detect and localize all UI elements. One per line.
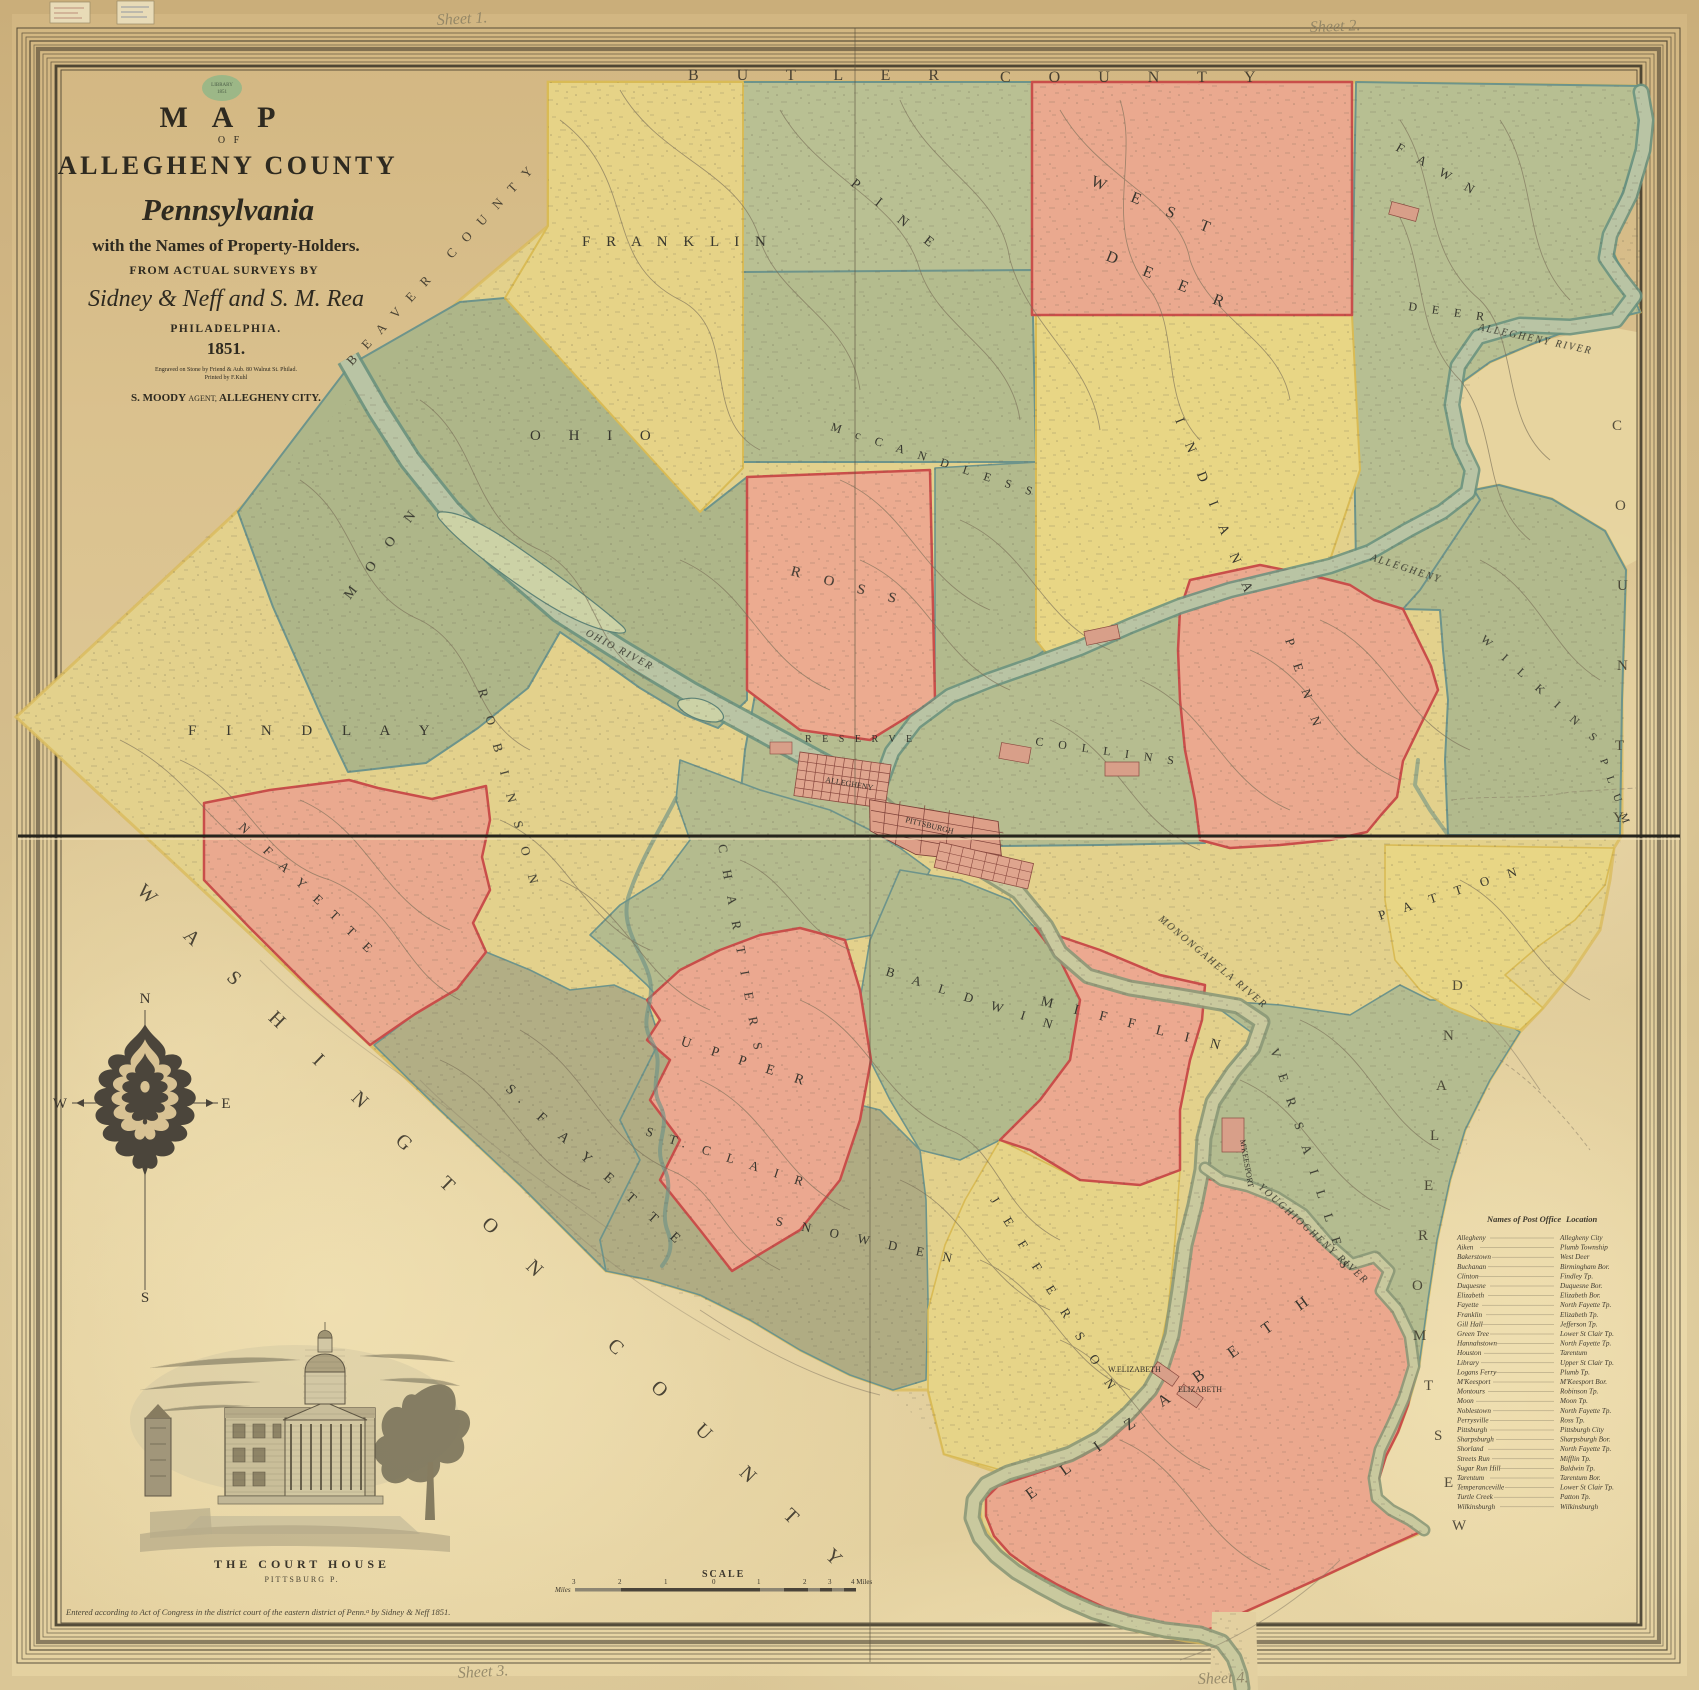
- svg-text:Noblestown: Noblestown: [1456, 1407, 1491, 1415]
- svg-text:Birmingham Bor.: Birmingham Bor.: [1560, 1263, 1610, 1271]
- svg-text:PHILADELPHIA.: PHILADELPHIA.: [170, 323, 281, 335]
- svg-text:F I N D L A Y: F I N D L A Y: [188, 723, 443, 739]
- svg-text:Montours: Montours: [1456, 1388, 1485, 1396]
- svg-text:Patton Tp.: Patton Tp.: [1559, 1493, 1591, 1501]
- svg-text:U: U: [1617, 578, 1628, 594]
- svg-text:3: 3: [828, 1578, 832, 1586]
- svg-text:S: S: [1434, 1428, 1442, 1444]
- svg-text:E: E: [1424, 1178, 1433, 1194]
- svg-text:ALLEGHENY COUNTY: ALLEGHENY COUNTY: [58, 151, 398, 180]
- svg-text:M: M: [1413, 1328, 1426, 1344]
- svg-text:Names of Post Office: Names of Post Office: [1486, 1214, 1561, 1224]
- svg-text:Bakerstown: Bakerstown: [1457, 1253, 1491, 1261]
- svg-text:Hannahstown: Hannahstown: [1456, 1340, 1497, 1348]
- svg-text:THE COURT HOUSE: THE COURT HOUSE: [214, 1557, 390, 1571]
- svg-text:M A P: M A P: [160, 101, 285, 134]
- svg-text:1851: 1851: [217, 90, 228, 95]
- svg-text:Sidney & Neff and S. M. Rea: Sidney & Neff and S. M. Rea: [88, 286, 364, 312]
- svg-text:M'Keesport: M'Keesport: [1456, 1378, 1491, 1386]
- svg-text:Mifflin Tp.: Mifflin Tp.: [1559, 1455, 1591, 1463]
- svg-text:Houston: Houston: [1456, 1349, 1482, 1357]
- svg-text:Baldwin Tp.: Baldwin Tp.: [1560, 1464, 1595, 1472]
- svg-text:Allegheny City: Allegheny City: [1559, 1234, 1603, 1242]
- svg-text:R E S E R V E: R E S E R V E: [805, 734, 916, 745]
- svg-text:T: T: [1615, 738, 1624, 754]
- svg-text:Pittsburgh: Pittsburgh: [1456, 1426, 1487, 1434]
- svg-text:Lower St Clair Tp.: Lower St Clair Tp.: [1559, 1484, 1614, 1492]
- svg-text:Sugar Run Hill: Sugar Run Hill: [1457, 1464, 1501, 1472]
- svg-text:Allegheny: Allegheny: [1456, 1234, 1487, 1242]
- svg-text:North Fayette Tp.: North Fayette Tp.: [1559, 1445, 1612, 1453]
- svg-text:Plumb Tp.: Plumb Tp.: [1559, 1368, 1590, 1376]
- svg-text:Sheet 3.: Sheet 3.: [457, 1662, 508, 1682]
- svg-text:Plumb Township: Plumb Township: [1559, 1244, 1608, 1252]
- svg-text:A: A: [1436, 1078, 1447, 1094]
- svg-text:D: D: [1452, 978, 1463, 994]
- svg-text:Wilkinsburgh: Wilkinsburgh: [1560, 1503, 1598, 1511]
- svg-text:with the Names of Property-Hol: with the Names of Property-Holders.: [92, 236, 359, 255]
- svg-text:O: O: [1412, 1278, 1423, 1294]
- svg-text:Library: Library: [1456, 1359, 1480, 1367]
- svg-text:C O U N T Y: C O U N T Y: [1000, 69, 1273, 86]
- svg-text:Sharpsburgh: Sharpsburgh: [1457, 1436, 1494, 1444]
- svg-text:C: C: [1612, 418, 1622, 434]
- svg-text:Tarentum Bor.: Tarentum Bor.: [1560, 1474, 1601, 1482]
- svg-text:1: 1: [757, 1578, 761, 1586]
- svg-text:Pittsburgh City: Pittsburgh City: [1559, 1426, 1605, 1434]
- svg-text:North Fayette Tp.: North Fayette Tp.: [1559, 1407, 1612, 1415]
- svg-text:Streets Run: Streets Run: [1457, 1455, 1490, 1463]
- svg-text:Sheet 4.: Sheet 4.: [1198, 1669, 1249, 1688]
- svg-text:0: 0: [712, 1578, 716, 1586]
- svg-text:2: 2: [803, 1578, 807, 1586]
- svg-text:Wilkinsburgh: Wilkinsburgh: [1457, 1503, 1495, 1511]
- svg-text:Findley Tp.: Findley Tp.: [1559, 1272, 1593, 1280]
- svg-text:Green Tree: Green Tree: [1457, 1330, 1490, 1338]
- svg-text:Turtle Creek: Turtle Creek: [1457, 1493, 1494, 1501]
- svg-text:Buchanan: Buchanan: [1457, 1263, 1487, 1271]
- svg-text:SCALE: SCALE: [702, 1569, 745, 1580]
- svg-text:PITTSBURG P.: PITTSBURG P.: [264, 1575, 339, 1584]
- svg-text:Sharpsburgh Bor.: Sharpsburgh Bor.: [1560, 1436, 1611, 1444]
- svg-text:N: N: [140, 991, 151, 1007]
- svg-text:Sheet 1.: Sheet 1.: [436, 9, 487, 29]
- svg-text:N: N: [1617, 658, 1628, 674]
- svg-text:ELIZABETH: ELIZABETH: [1178, 1385, 1222, 1394]
- svg-text:M'Keesport Bor.: M'Keesport Bor.: [1559, 1378, 1607, 1386]
- svg-text:Logans Ferry: Logans Ferry: [1456, 1368, 1497, 1376]
- svg-text:North Fayette Tp.: North Fayette Tp.: [1559, 1301, 1612, 1309]
- svg-text:1851.: 1851.: [207, 339, 245, 358]
- svg-text:Miles: Miles: [554, 1586, 571, 1594]
- svg-text:O: O: [1615, 498, 1626, 514]
- svg-text:Temperanceville: Temperanceville: [1457, 1484, 1505, 1492]
- svg-text:W: W: [53, 1096, 68, 1112]
- svg-text:Upper St Clair Tp.: Upper St Clair Tp.: [1560, 1359, 1614, 1367]
- svg-text:O H I O: O H I O: [530, 428, 663, 444]
- svg-text:E: E: [221, 1096, 230, 1112]
- svg-text:Elizabeth: Elizabeth: [1456, 1292, 1485, 1300]
- svg-text:Fayette: Fayette: [1456, 1301, 1479, 1309]
- svg-text:Aiken: Aiken: [1456, 1244, 1474, 1252]
- svg-text:1: 1: [664, 1578, 668, 1586]
- svg-text:Location: Location: [1565, 1214, 1597, 1224]
- svg-text:E: E: [1444, 1475, 1453, 1491]
- svg-text:W.ELIZABETH: W.ELIZABETH: [1108, 1365, 1161, 1374]
- svg-text:Jefferson Tp.: Jefferson Tp.: [1560, 1320, 1598, 1328]
- svg-text:Franklin: Franklin: [1456, 1311, 1483, 1319]
- svg-text:Robinson Tp.: Robinson Tp.: [1559, 1388, 1599, 1396]
- svg-text:Entered according to Act of Co: Entered according to Act of Congress in …: [65, 1607, 450, 1617]
- svg-text:2: 2: [618, 1578, 622, 1586]
- svg-text:Tarentum: Tarentum: [1457, 1474, 1484, 1482]
- svg-text:3: 3: [572, 1578, 576, 1586]
- svg-text:Sheet 2.: Sheet 2.: [1310, 17, 1361, 36]
- svg-text:Shorland: Shorland: [1457, 1445, 1484, 1453]
- svg-text:R: R: [1418, 1228, 1428, 1244]
- svg-text:S. MOODY AGENT, ALLEGHENY CITY: S. MOODY AGENT, ALLEGHENY CITY.: [131, 392, 321, 404]
- svg-text:North Fayette Tp.: North Fayette Tp.: [1559, 1340, 1612, 1348]
- svg-text:Elizabeth Tp.: Elizabeth Tp.: [1559, 1311, 1599, 1319]
- svg-text:Printed by F.Kuhl: Printed by F.Kuhl: [205, 375, 248, 381]
- svg-text:Moon: Moon: [1456, 1397, 1474, 1405]
- svg-text:Moon Tp.: Moon Tp.: [1559, 1397, 1588, 1405]
- svg-text:F R A N K L I N: F R A N K L I N: [582, 234, 772, 250]
- svg-text:West Deer: West Deer: [1560, 1253, 1590, 1261]
- svg-text:Ross Tp.: Ross Tp.: [1559, 1416, 1585, 1424]
- svg-text:N: N: [1443, 1028, 1454, 1044]
- svg-text:L: L: [1430, 1128, 1439, 1144]
- svg-text:4 Miles: 4 Miles: [851, 1578, 872, 1586]
- svg-text:S: S: [141, 1290, 149, 1306]
- svg-text:Duquesne Bor.: Duquesne Bor.: [1559, 1282, 1603, 1290]
- svg-text:T: T: [1424, 1378, 1433, 1394]
- svg-text:FROM ACTUAL SURVEYS BY: FROM ACTUAL SURVEYS BY: [129, 263, 318, 277]
- svg-text:Tarentum: Tarentum: [1560, 1349, 1587, 1357]
- svg-text:Duquesne: Duquesne: [1456, 1282, 1487, 1290]
- svg-text:Perrysville: Perrysville: [1456, 1416, 1489, 1424]
- svg-text:W: W: [1452, 1518, 1467, 1534]
- svg-text:LIBRARY: LIBRARY: [211, 83, 233, 88]
- svg-text:Lower St Clair Tp.: Lower St Clair Tp.: [1559, 1330, 1614, 1338]
- svg-text:B U T L E R: B U T L E R: [688, 67, 956, 84]
- svg-text:Clinton: Clinton: [1457, 1272, 1479, 1280]
- svg-text:Elizabeth Bor.: Elizabeth Bor.: [1559, 1292, 1601, 1300]
- svg-text:Engraved on Stone by Friend &: Engraved on Stone by Friend & Aub. 80 Wa…: [155, 367, 297, 373]
- svg-text:O F: O F: [218, 135, 242, 146]
- svg-text:Gill Hall: Gill Hall: [1457, 1320, 1483, 1328]
- svg-text:Pennsylvania: Pennsylvania: [141, 192, 314, 227]
